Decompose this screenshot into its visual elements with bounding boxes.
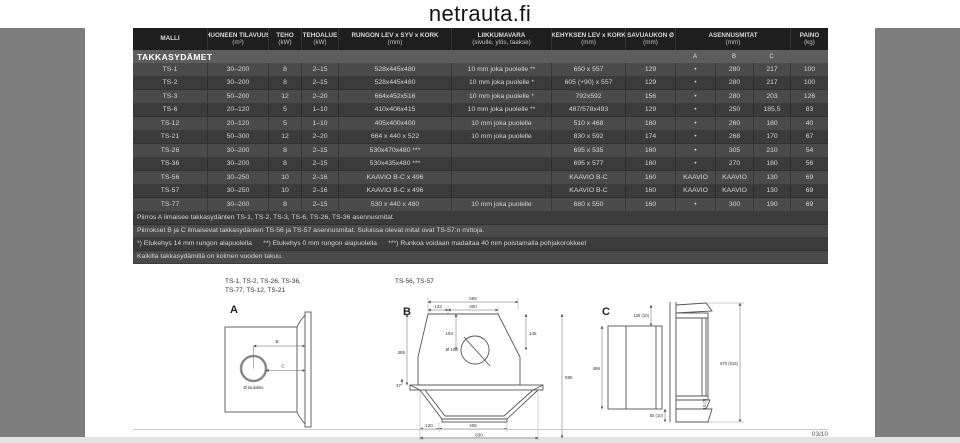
- column-header: HUONEEN TILAVUUS(m³): [207, 28, 268, 50]
- dim-back-height: 496: [592, 366, 600, 371]
- cell: 129: [625, 77, 675, 90]
- dim-hole: Ø 160: [446, 347, 459, 352]
- cell: KAAVIO B-C x 496: [338, 185, 451, 198]
- cell: KAAVIO B-C: [551, 171, 625, 184]
- sub-column-header: A: [675, 50, 715, 63]
- cell: 210: [753, 144, 790, 157]
- cell: 10 mm joka puolelle **: [451, 104, 551, 117]
- sub-column-header: C: [753, 50, 790, 63]
- diagram-b: B 565 133 300 Ø 160 194 365 145 595 37 1…: [390, 292, 600, 443]
- section-row: TAKKASYDÄMETABC: [133, 50, 828, 63]
- dim-left-offset: 133: [434, 304, 442, 309]
- cell: 50–300: [207, 131, 268, 144]
- cell: •: [675, 117, 715, 130]
- table-header-row: MALLIHUONEEN TILAVUUS(m³)TEHO(kW)TEHOALU…: [133, 28, 828, 50]
- dim-total-height-c: 670 (515): [720, 361, 739, 366]
- sub-header-spacer: [790, 50, 828, 63]
- cell: 30–200: [207, 144, 268, 157]
- cell: •: [675, 63, 715, 76]
- column-header: MALLI: [133, 28, 207, 50]
- frame-outer: [420, 390, 538, 419]
- cell: 160: [625, 185, 675, 198]
- diagram-a-models-line1: TS-1, TS-2, TS-26, TS-36,: [225, 277, 301, 286]
- cell: 2–20: [301, 131, 338, 144]
- column-label: PAINO: [800, 32, 819, 40]
- dim-total-height: 595: [565, 375, 573, 380]
- cell: 10 mm joka puolelle: [451, 198, 551, 211]
- site-logo: netrauta.fi: [0, 0, 960, 28]
- note-row: Kaikilla takkasydämillä on kolmen vuoden…: [133, 251, 828, 264]
- table-row: TS-7730–20082–15530 x 440 x 48010 mm jok…: [133, 198, 828, 212]
- cell: 2–15: [301, 144, 338, 157]
- cell: 8: [268, 198, 301, 211]
- cell: 180: [753, 158, 790, 171]
- cell: TS-56: [133, 171, 207, 184]
- page-divider: [133, 429, 828, 430]
- section-title: TAKKASYDÄMET: [133, 50, 675, 63]
- cell: 664x452x516: [338, 90, 451, 103]
- column-header: ASENNUSMITAT(mm): [675, 28, 790, 50]
- cell: 650 x 557: [551, 63, 625, 76]
- cell: 305: [715, 144, 753, 157]
- dim-label-b: B: [275, 339, 278, 344]
- cell: 1–10: [301, 104, 338, 117]
- cell: 2–15: [301, 63, 338, 76]
- cell: 217: [753, 77, 790, 90]
- note-text: Piirrokset B ja C ilmaisevat takkasydänt…: [133, 225, 828, 237]
- sub-column-header: B: [715, 50, 753, 63]
- cell: •: [675, 131, 715, 144]
- hole-diameter-label: Ø taulukko: [243, 385, 264, 390]
- note-text: *) Etukehys 14 mm rungon alapuolella **)…: [133, 238, 828, 250]
- column-label: KEHYKSEN LEV x KORK: [551, 32, 625, 40]
- column-header: RUNGON LEV x SYV x KORK(mm): [338, 28, 451, 50]
- cell: 126: [790, 90, 828, 103]
- cell: 170: [753, 131, 790, 144]
- cell: 5: [268, 117, 301, 130]
- insert-cap: [676, 303, 712, 313]
- cell: 160: [625, 144, 675, 157]
- cell: 20–120: [207, 117, 268, 130]
- table-row: TS-2150–300122–20664 x 440 x 52210 mm jo…: [133, 131, 828, 145]
- dim-label-c: C: [281, 364, 285, 369]
- cell: 156: [625, 90, 675, 103]
- cell: 10: [268, 171, 301, 184]
- cell: 5: [268, 104, 301, 117]
- cell: [451, 144, 551, 157]
- cell: 30–250: [207, 185, 268, 198]
- cell: 528x445x480: [338, 77, 451, 90]
- cell: •: [675, 198, 715, 211]
- cell: 695 x 577: [551, 158, 625, 171]
- table-row: TS-2630–20082–15530x470x480 ***695 x 535…: [133, 144, 828, 158]
- column-header: KEHYKSEN LEV x KORK(mm): [551, 28, 625, 50]
- dim-top-width: 565: [469, 296, 477, 301]
- cell: KAAVIO B-C: [551, 185, 625, 198]
- column-label: HUONEEN TILAVUUS: [207, 32, 268, 40]
- cell: 10 mm joka puolelle *: [451, 77, 551, 90]
- cell: 2–15: [301, 77, 338, 90]
- cell: 40: [790, 117, 828, 130]
- viewer-gutter-right: [875, 28, 960, 437]
- table-row: TS-350–200122–20664x452x51610 mm joka pu…: [133, 90, 828, 104]
- cell: •: [675, 158, 715, 171]
- column-label: ASENNUSMITAT: [708, 32, 757, 40]
- column-unit: (kW): [313, 39, 326, 47]
- table-row: TS-620–12051–10410x406x41510 mm joka puo…: [133, 104, 828, 118]
- cell: •: [675, 144, 715, 157]
- cell: 30–200: [207, 63, 268, 76]
- shelf: [410, 385, 543, 390]
- cell: 180: [753, 117, 790, 130]
- cell: 30–200: [207, 77, 268, 90]
- column-header: PAINO(kg): [790, 28, 828, 50]
- table-row: TS-1220–12051–10405x400x40010 mm joka pu…: [133, 117, 828, 131]
- cell: 129: [625, 63, 675, 76]
- cell: 8: [268, 144, 301, 157]
- cell: TS-1: [133, 63, 207, 76]
- dim-opening-width: 406: [469, 423, 477, 428]
- diagram-a-models-line2: TS-77, TS-12, TS-21: [225, 286, 301, 295]
- cell: 217: [753, 63, 790, 76]
- cell: 530x470x480 ***: [338, 144, 451, 157]
- diagram-b-models: TS-56, TS-57: [395, 277, 434, 286]
- cell: KAAVIO: [715, 185, 753, 198]
- column-unit: (mm): [726, 39, 741, 47]
- cell: 100: [790, 77, 828, 90]
- cell: 50–200: [207, 90, 268, 103]
- table-row: TS-130–20082–15528x445x48010 mm joka puo…: [133, 63, 828, 77]
- column-unit: (mm): [581, 39, 596, 47]
- table-row: TS-3630–20082–15530x435x480 ***695 x 577…: [133, 158, 828, 172]
- cell: 129: [625, 104, 675, 117]
- cell: 2–15: [301, 158, 338, 171]
- cell: 160: [625, 171, 675, 184]
- cell: KAAVIO: [675, 185, 715, 198]
- cell: 280: [715, 77, 753, 90]
- cell: TS-36: [133, 158, 207, 171]
- dim-upper-left: 194: [445, 331, 453, 336]
- cell: 2–16: [301, 171, 338, 184]
- cell: TS-21: [133, 131, 207, 144]
- cell: 280: [715, 63, 753, 76]
- dim-top-offset: 125 (10): [633, 313, 649, 318]
- cell: 30–200: [207, 158, 268, 171]
- cell: 410x406x415: [338, 104, 451, 117]
- cell: 528x445x480: [338, 63, 451, 76]
- note-text: Piirros A ilmaisee takkasydänten TS-1, T…: [133, 212, 828, 224]
- cell: 67: [790, 131, 828, 144]
- dim-bottom-offset: 50 (10): [650, 413, 664, 418]
- cell: TS-3: [133, 90, 207, 103]
- cell: 250: [715, 104, 753, 117]
- table-row: TS-230–20082–15528x445x48010 mm joka puo…: [133, 77, 828, 91]
- cell: [451, 185, 551, 198]
- column-unit: (mm): [643, 39, 658, 47]
- cell: 8: [268, 77, 301, 90]
- note-row: *) Etukehys 14 mm rungon alapuolella **)…: [133, 238, 828, 251]
- cell: 10 mm joka puolelle: [451, 131, 551, 144]
- cell: 300: [715, 198, 753, 211]
- cell: 160: [625, 158, 675, 171]
- cell: •: [675, 77, 715, 90]
- cell: 2–16: [301, 185, 338, 198]
- front-panel-outline: [225, 327, 297, 412]
- cell: TS-2: [133, 77, 207, 90]
- cell: 680 x 550: [551, 198, 625, 211]
- cell: TS-57: [133, 185, 207, 198]
- cell: 280: [715, 90, 753, 103]
- cell: 10: [268, 185, 301, 198]
- cell: •: [675, 90, 715, 103]
- cell: 69: [790, 198, 828, 211]
- cell: 2–15: [301, 198, 338, 211]
- cell: 270: [715, 158, 753, 171]
- diagram-c: C 496 125 (10) 10 (7) 50 (10) 670 (515): [588, 292, 753, 443]
- cell: TS-6: [133, 104, 207, 117]
- cell: 160: [625, 198, 675, 211]
- diagram-a-label: A: [230, 304, 238, 316]
- cell: 530 x 440 x 480: [338, 198, 451, 211]
- spec-table: MALLIHUONEEN TILAVUUS(m³)TEHO(kW)TEHOALU…: [133, 28, 828, 264]
- cell: 664 x 440 x 522: [338, 131, 451, 144]
- cell: 83: [790, 104, 828, 117]
- cell: 695 x 535: [551, 144, 625, 157]
- insert-body: [676, 313, 708, 400]
- note-row: Piirrokset B ja C ilmaisevat takkasydänt…: [133, 225, 828, 238]
- column-header: LIIKKUMAVARA(sivulle, ylös, taakse): [451, 28, 551, 50]
- frame-inner: [425, 390, 533, 416]
- cell: 260: [715, 117, 753, 130]
- dim-upper-right: 145: [529, 331, 537, 336]
- cell: 405x400x400: [338, 117, 451, 130]
- cell: 792x592: [551, 90, 625, 103]
- cell: 8: [268, 63, 301, 76]
- dim-left-height: 365: [397, 350, 405, 355]
- cell: 830 x 592: [551, 131, 625, 144]
- cell: 203: [753, 90, 790, 103]
- cell: TS-26: [133, 144, 207, 157]
- cell: 10 mm joka puolelle **: [451, 63, 551, 76]
- cell: 487/578x493: [551, 104, 625, 117]
- viewer-gutter-left: [0, 28, 85, 437]
- table-row: TS-5630–250102–16KAAVIO B-C x 496KAAVIO …: [133, 171, 828, 185]
- column-label: SAVUAUKON Ø: [627, 32, 674, 40]
- column-unit: (kW): [278, 39, 291, 47]
- cell: 12: [268, 90, 301, 103]
- table-row: TS-5730–250102–16KAAVIO B-C x 496KAAVIO …: [133, 185, 828, 199]
- cell: KAAVIO: [675, 171, 715, 184]
- column-unit: (m³): [232, 39, 244, 47]
- cell: 2–20: [301, 90, 338, 103]
- column-unit: (sivulle, ylös, taakse): [472, 39, 530, 47]
- cell: 56: [790, 158, 828, 171]
- note-text: Kaikilla takkasydämillä on kolmen vuoden…: [133, 251, 828, 263]
- cell: 54: [790, 144, 828, 157]
- diagram-a-models: TS-1, TS-2, TS-26, TS-36, TS-77, TS-12, …: [225, 277, 301, 295]
- cell: 190: [753, 198, 790, 211]
- cell: •: [675, 104, 715, 117]
- dim-shelf: 37: [396, 383, 402, 388]
- cell: [451, 158, 551, 171]
- column-label: TEHO: [276, 32, 294, 40]
- cell: 185,5: [753, 104, 790, 117]
- cell: 1–10: [301, 117, 338, 130]
- cell: 160: [625, 117, 675, 130]
- wall-section: [305, 312, 311, 427]
- cell: 130: [753, 185, 790, 198]
- column-unit: (mm): [388, 39, 403, 47]
- cell: TS-12: [133, 117, 207, 130]
- diagram-c-label: C: [602, 306, 610, 318]
- dim-base-width: 830: [475, 433, 483, 438]
- column-header: SAVUAUKON Ø(mm): [625, 28, 675, 50]
- cell: 130: [753, 171, 790, 184]
- cell: TS-77: [133, 198, 207, 211]
- cell: 10 mm joka puolelle: [451, 117, 551, 130]
- cell: [451, 171, 551, 184]
- cell: 69: [790, 185, 828, 198]
- cell: 510 x 468: [551, 117, 625, 130]
- cell: 605 (+90) x 557: [551, 77, 625, 90]
- back-panel: [608, 326, 662, 409]
- column-header: TEHOALUE(kW): [301, 28, 338, 50]
- cell: 30–250: [207, 171, 268, 184]
- cell: 10 mm joka puolelle *: [451, 90, 551, 103]
- column-label: MALLI: [160, 35, 179, 43]
- cell: 69: [790, 171, 828, 184]
- diagram-a: A B C Ø taulukko: [220, 295, 350, 443]
- dim-foot-inset: 120: [425, 423, 433, 428]
- column-header: TEHO(kW): [268, 28, 301, 50]
- cell: 8: [268, 158, 301, 171]
- cell: 30–200: [207, 198, 268, 211]
- column-label: LIIKKUMAVARA: [478, 32, 526, 40]
- page-number: 03/10: [758, 431, 828, 438]
- cell: 12: [268, 131, 301, 144]
- column-label: RUNGON LEV x SYV x KORK: [351, 32, 438, 40]
- cell: 268: [715, 131, 753, 144]
- note-row: Piirros A ilmaisee takkasydänten TS-1, T…: [133, 212, 828, 225]
- cell: 20–120: [207, 104, 268, 117]
- cell: 174: [625, 131, 675, 144]
- cell: KAAVIO: [715, 171, 753, 184]
- cell: KAAVIO B-C x 496: [338, 171, 451, 184]
- cell: 100: [790, 63, 828, 76]
- dim-lip: 10 (7): [702, 398, 707, 410]
- dim-center-offset: 300: [469, 304, 477, 309]
- column-label: TEHOALUE: [303, 32, 338, 40]
- cell: 530x435x480 ***: [338, 158, 451, 171]
- column-unit: (kg): [804, 39, 815, 47]
